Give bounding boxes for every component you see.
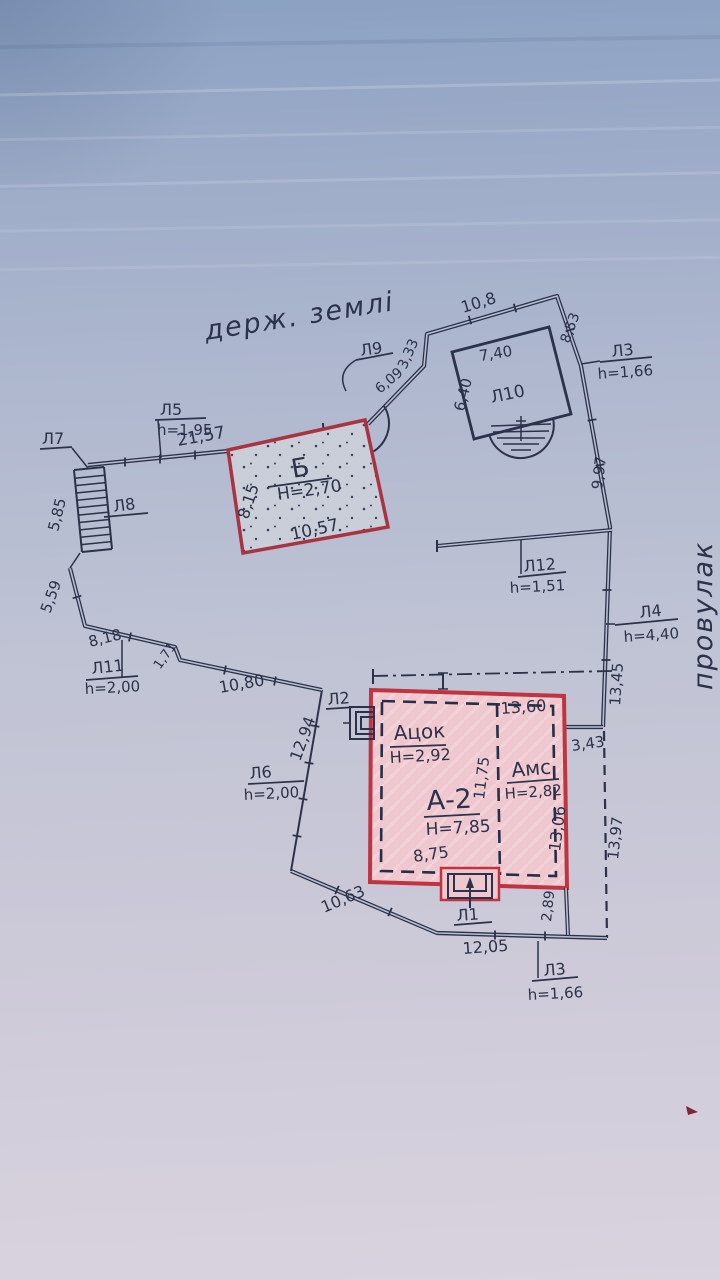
point-l6-height: h=2,00 [243, 783, 299, 804]
porch-l1 [441, 868, 499, 908]
a2-height: H=7,85 [425, 817, 491, 840]
site-plan-drawing: Б H=2,70 8,15 10,57 7,40 6,40 Л10 [0, 0, 720, 1280]
a2-dim-top: 13,60 [500, 696, 547, 718]
dim-3-33: 3,33 [395, 337, 422, 372]
wall-l12 [437, 530, 612, 552]
point-l4-label: Л4 [638, 601, 662, 622]
paper-speck [686, 1106, 698, 1115]
point-l8-label: Л8 [112, 494, 137, 516]
street-name: провулак [688, 541, 719, 690]
land-note: держ. землі [201, 286, 396, 347]
dim-9-97: 9,97 [588, 455, 610, 490]
a2-basement-label: Ацок [393, 718, 446, 745]
dim-13-45: 13,45 [606, 662, 627, 706]
dim-3-43: 3,43 [570, 732, 606, 754]
dim-2-89: 2,89 [539, 890, 558, 923]
structure-l10-label: Л10 [489, 381, 527, 408]
a2-annex-label: Амс [510, 755, 552, 782]
dim-1-71: 1,71 [151, 640, 180, 672]
section-centerline [373, 669, 612, 689]
point-l3-top-height: h=1,66 [597, 361, 654, 383]
point-l6-label: Л6 [249, 762, 273, 783]
a2-label: А-2 [426, 784, 473, 817]
dim-12-05: 12,05 [462, 936, 509, 958]
structure-l10-dim-side: 6,40 [450, 376, 476, 413]
a2-basement-height: H=2,92 [389, 745, 451, 767]
point-l3-bottom-height: h=1,66 [527, 983, 583, 1004]
point-l3-top-label: Л3 [610, 340, 634, 361]
point-l11-height: h=2,00 [84, 677, 140, 698]
building-a2: Ацок H=2,92 А-2 H=7,85 Амс H=2,82 13,60 … [370, 690, 570, 888]
dim-5-59: 5,59 [37, 578, 65, 616]
point-l12-height: h=1,51 [509, 576, 565, 597]
dim-5-85: 5,85 [44, 496, 70, 533]
point-l4-height: h=4,40 [623, 624, 680, 646]
point-l2-label: Л2 [327, 688, 351, 709]
building-b: Б H=2,70 8,15 10,57 [228, 420, 388, 553]
point-l5-label: Л5 [160, 400, 182, 419]
point-l1-label: Л1 [456, 904, 479, 925]
structure-l10-dim-top: 7,40 [478, 342, 514, 365]
point-l7-label: Л7 [42, 429, 64, 448]
dim-10-8: 10,8 [459, 288, 499, 317]
structure-l10: 7,40 6,40 Л10 [450, 327, 571, 458]
steps-structure-l8 [74, 467, 112, 552]
point-l11-label: Л11 [90, 656, 124, 678]
wall-2-89 [566, 888, 568, 935]
dim-13-97: 13,97 [604, 816, 626, 861]
point-l3-bottom-label: Л3 [543, 959, 567, 980]
